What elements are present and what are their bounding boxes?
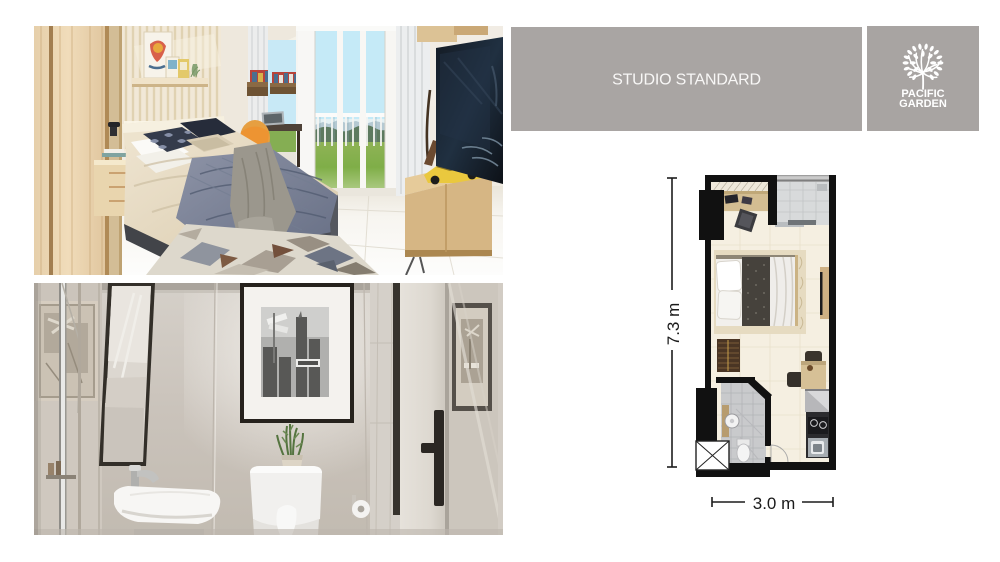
svg-text:3.0 m: 3.0 m [753,494,796,513]
svg-text:7.3 m: 7.3 m [664,303,683,346]
